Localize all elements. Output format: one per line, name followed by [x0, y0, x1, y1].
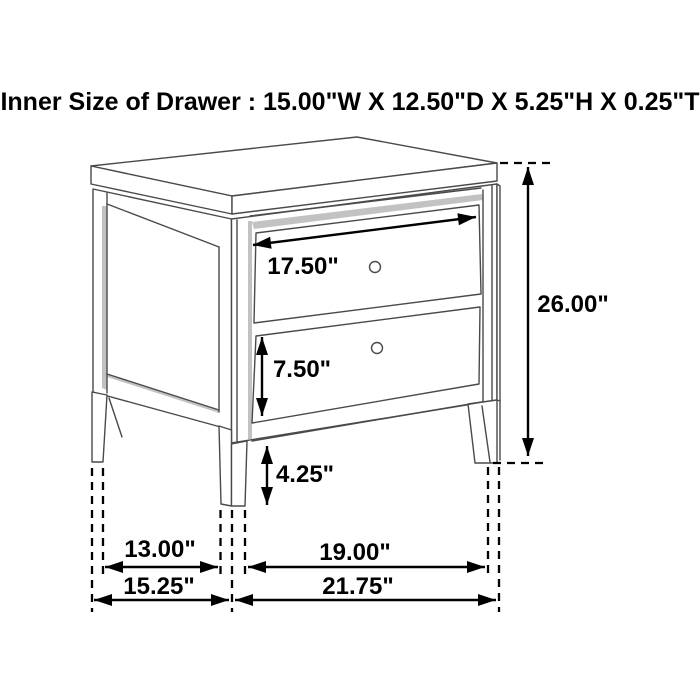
back-left-leg-taper-line — [109, 398, 122, 437]
dim-label-inner-leg-depth: 13.00" — [124, 536, 195, 563]
dim-label-inner-leg-width: 19.00" — [319, 539, 390, 566]
dim-label-overall-height: 26.00" — [537, 291, 608, 318]
dimension-diagram-page: Inner Size of Drawer : 15.00"W X 12.50"D… — [0, 0, 700, 700]
back-left-leg — [92, 392, 107, 462]
panel-shadow-left — [102, 206, 107, 390]
top-drawer-knob — [370, 262, 381, 273]
right-side-sliver — [497, 184, 500, 401]
dim-label-bottom-drawer-height: 7.50" — [273, 356, 331, 383]
nightstand-line-art — [91, 137, 500, 506]
front-left-leg-front — [232, 441, 248, 506]
front-left-leg-side — [219, 426, 232, 506]
dim-label-leg-height: 4.25" — [276, 461, 334, 488]
dim-label-drawer-front-width: 17.50" — [267, 253, 338, 280]
dim-label-overall-width: 21.75" — [322, 573, 393, 600]
dim-label-overall-depth: 15.25" — [123, 573, 194, 600]
nightstand-dimension-drawing: 17.50" 26.00" 7.50" 4.25" 13.00" 19.00" … — [0, 0, 700, 700]
drawer-opening-left-shadow — [248, 221, 252, 439]
bottom-drawer-knob — [372, 343, 383, 354]
